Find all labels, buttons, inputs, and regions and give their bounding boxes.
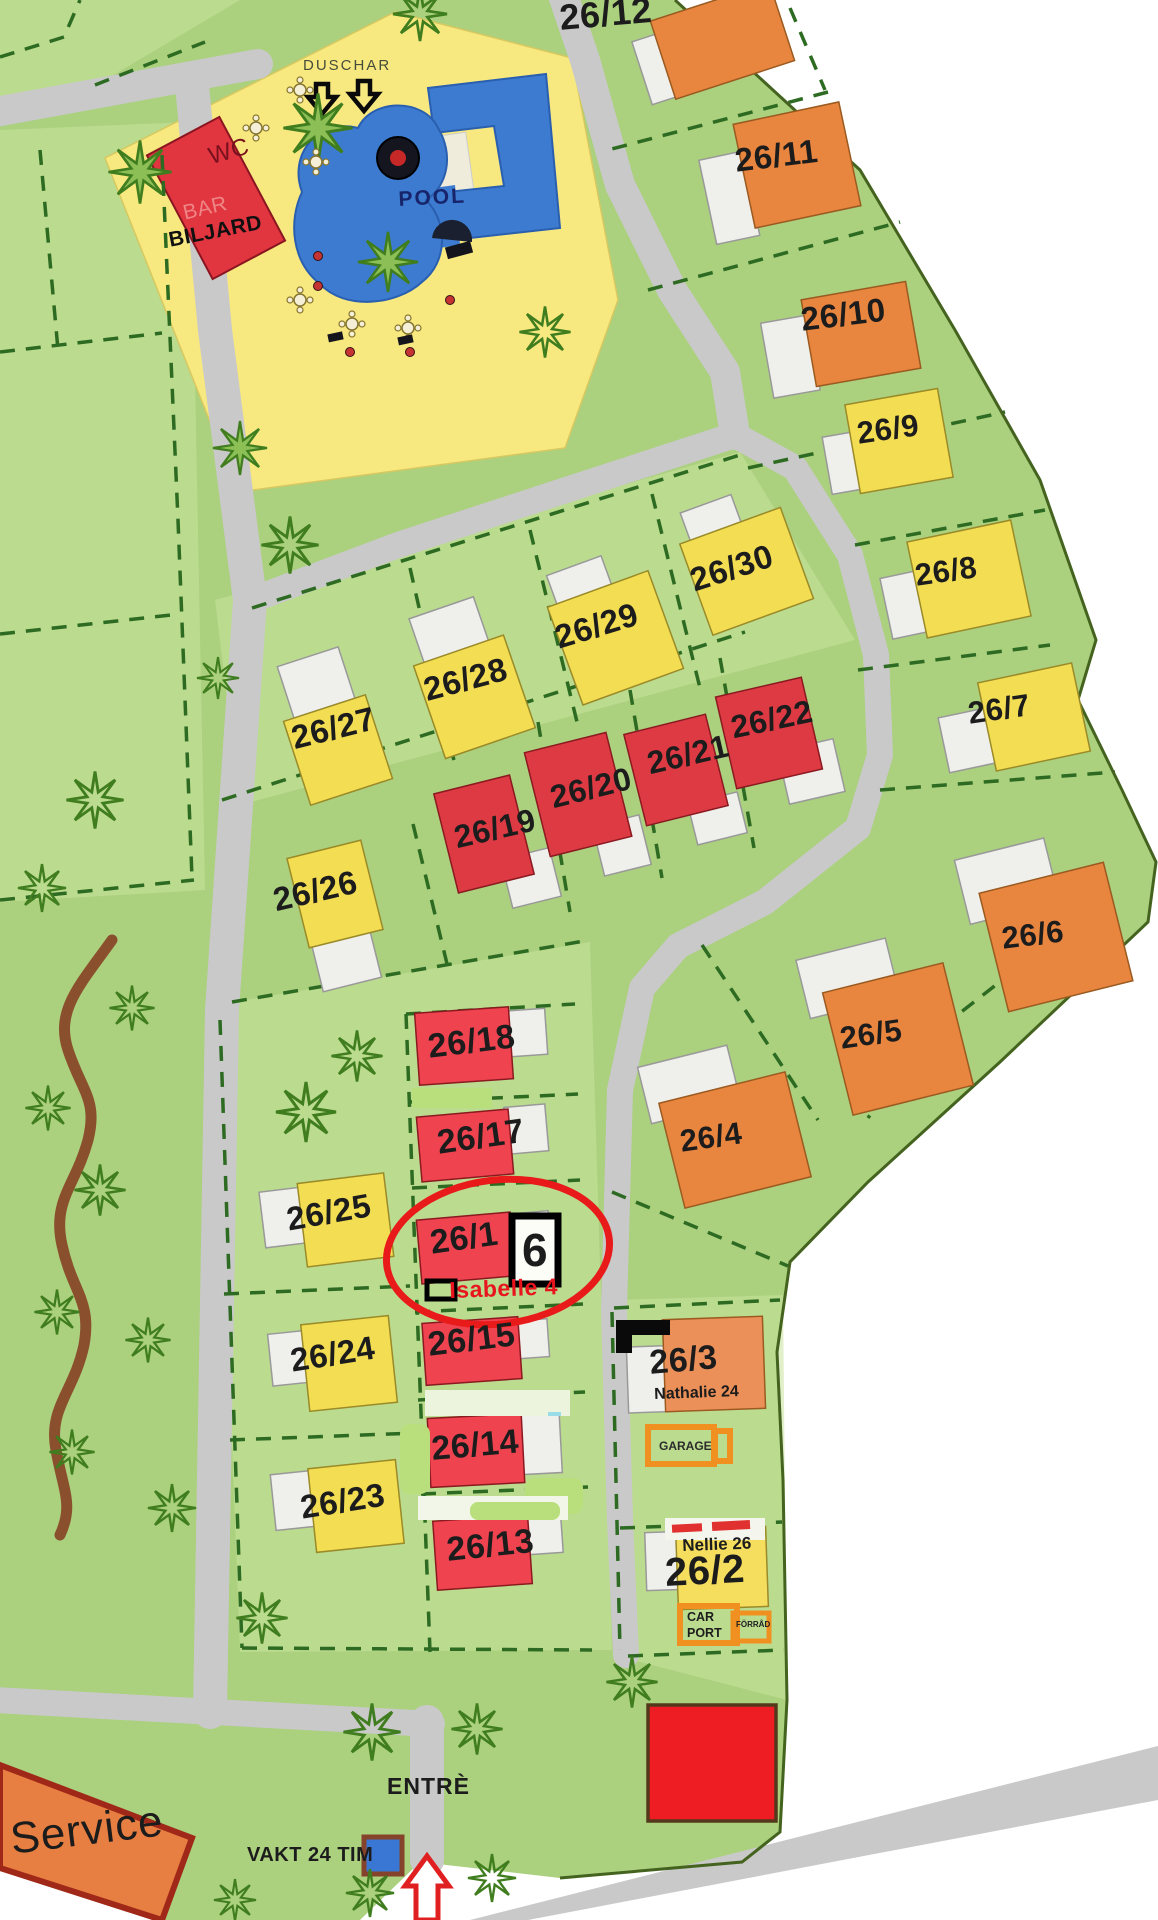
lot-label-26-13: 26/13 (445, 1524, 536, 1567)
lot-label-26-9: 26/9 (855, 409, 921, 448)
tree-icon (468, 1854, 516, 1902)
lot-label-26-8: 26/8 (913, 551, 979, 590)
entrance-label: ENTRÈ (387, 1775, 470, 1798)
isabelle-name-tag: Isabelle 4 (449, 1275, 558, 1302)
tree-icon (358, 232, 418, 292)
guard-label: VAKT 24 TIM (247, 1845, 373, 1865)
lot-label-26-3: 26/3 (648, 1340, 719, 1380)
garage-label: GARAGE (659, 1440, 712, 1452)
lot-label-26-5: 26/5 (838, 1014, 904, 1053)
tree-icon (213, 421, 267, 475)
carport-label-line2: PORT (687, 1625, 722, 1641)
lot-label-26-4: 26/4 (678, 1117, 744, 1156)
resort-site-map: DUSCHAR POOL WC BAR BILJARD 26/12 26/11 … (0, 0, 1158, 1920)
nathalie-name-tag: Nathalie 24 (654, 1384, 739, 1403)
red-building-square (648, 1705, 776, 1821)
carport-label-line1: CAR (687, 1609, 722, 1625)
lot-label-26-14: 26/14 (430, 1424, 520, 1466)
carport-label: CAR PORT (687, 1609, 722, 1642)
lot-label-26-7: 26/7 (966, 689, 1032, 728)
map-drawing (0, 0, 1158, 1920)
lot-label-26-6: 26/6 (1000, 915, 1066, 953)
tree-icon (109, 141, 172, 204)
lot-label-26-2: 26/2 (664, 1549, 746, 1593)
corner-bracket (616, 1320, 632, 1353)
lot-label-26-16: 26/1 (428, 1217, 500, 1260)
forrad-label: FÖRRÅD (736, 1621, 770, 1629)
lot-label-26-12: 26/12 (558, 0, 653, 36)
circled-lot-digit: 6 (522, 1227, 548, 1273)
pool-label: POOL (398, 185, 467, 210)
duschar-label: DUSCHAR (303, 58, 391, 73)
